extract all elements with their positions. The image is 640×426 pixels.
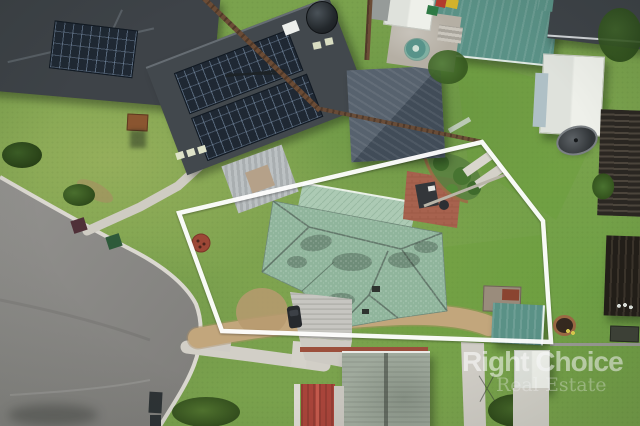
- boundary-overlay: [0, 0, 640, 426]
- property-boundary-line: [179, 142, 551, 342]
- aerial-photo: Right Choice Real Estate: [0, 0, 640, 426]
